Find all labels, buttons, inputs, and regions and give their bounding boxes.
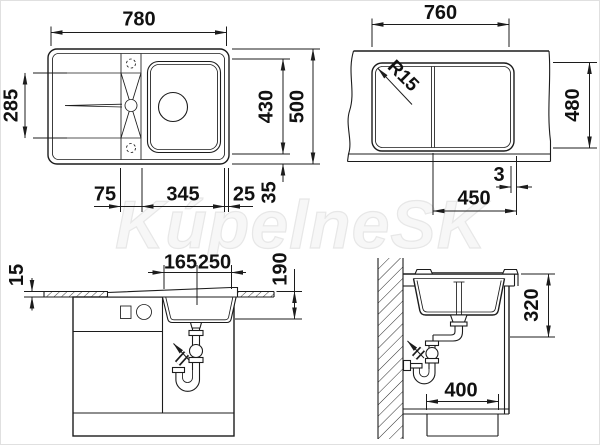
- dim-overall-width: 780: [51, 9, 227, 47]
- cabinet-symbol-circle: [137, 305, 152, 320]
- wall-outlet: [404, 361, 411, 371]
- cutout-view: R15 760 480 3 450: [348, 2, 598, 215]
- bowl-section-outline: [414, 279, 505, 316]
- dim-400-label: 400: [444, 380, 477, 402]
- dim-worktop-thickness: 15: [6, 264, 46, 311]
- plan-sink-body: [48, 49, 229, 164]
- wall-hatch: [378, 258, 403, 439]
- trap-bend-section: [413, 368, 435, 384]
- dim-190-label: 190: [270, 252, 292, 285]
- worktop-panel: [348, 51, 551, 162]
- section-siphon: [404, 315, 468, 384]
- dim-3-label: 3: [493, 164, 504, 186]
- dim-cutout-depth: 480: [553, 63, 597, 149]
- ball-joint: [190, 345, 203, 358]
- dim-500-label: 500: [287, 90, 309, 123]
- drawing-canvas: KúpelneSK 780: [1, 1, 600, 445]
- worktop-right-edge: [549, 51, 551, 162]
- dim-bowl-depth: 430: [232, 59, 290, 154]
- cabinet-symbol-square: [121, 306, 132, 319]
- dim-cabinet-depth: 400: [427, 380, 499, 411]
- dim-285-label: 285: [1, 89, 23, 122]
- drain-flange: [191, 323, 202, 329]
- sink-technical-drawing: KúpelneSK 780: [0, 0, 600, 445]
- ball-joint-section: [426, 348, 438, 360]
- dim-drain-clearance: 320: [510, 274, 555, 337]
- dim-drainer-depth: 285: [1, 73, 67, 138]
- plan-view: 780 285 430 500 35: [1, 9, 320, 213]
- front-view: 15 165 250 190: [6, 252, 302, 437]
- break-line: [348, 51, 354, 162]
- dim-780-label: 780: [122, 9, 155, 31]
- rim-profile: [108, 288, 238, 298]
- dim-760-label: 760: [424, 2, 457, 24]
- dim-320-label: 320: [521, 288, 543, 321]
- bowl-drain-hole: [159, 93, 188, 122]
- drainer-groove: [65, 104, 122, 107]
- drain-flange-section: [451, 315, 468, 322]
- dim-450-label: 450: [457, 188, 490, 210]
- dim-165-label: 165: [164, 252, 197, 274]
- dim-35-label: 35: [259, 181, 281, 203]
- dim-430-label: 430: [256, 90, 278, 123]
- dim-345-label: 345: [166, 184, 199, 206]
- sink-outline: [48, 49, 229, 164]
- tap-hole-center: [125, 100, 137, 112]
- section-view: 320 400: [378, 258, 555, 439]
- tap-hole-optional-bottom: [127, 144, 136, 153]
- section-sink: [414, 270, 519, 316]
- dim-75-label: 75: [94, 184, 116, 206]
- elbow-pipe: [433, 332, 463, 342]
- tap-hole-optional-top: [127, 59, 136, 68]
- wall: [378, 258, 403, 439]
- dim-bottom-edge: 35: [259, 164, 284, 204]
- dim-25-label: 25: [233, 184, 255, 206]
- dim-edge-gap: 3: [493, 156, 532, 215]
- dim-15-label: 15: [6, 264, 28, 286]
- dim-480-label: 480: [562, 88, 584, 121]
- dim-250-label: 250: [198, 252, 231, 274]
- rim-right: [503, 270, 519, 275]
- dim-cutout-width: 760: [372, 2, 509, 47]
- sink-inner-rim: [53, 54, 225, 160]
- rim-left: [415, 270, 433, 275]
